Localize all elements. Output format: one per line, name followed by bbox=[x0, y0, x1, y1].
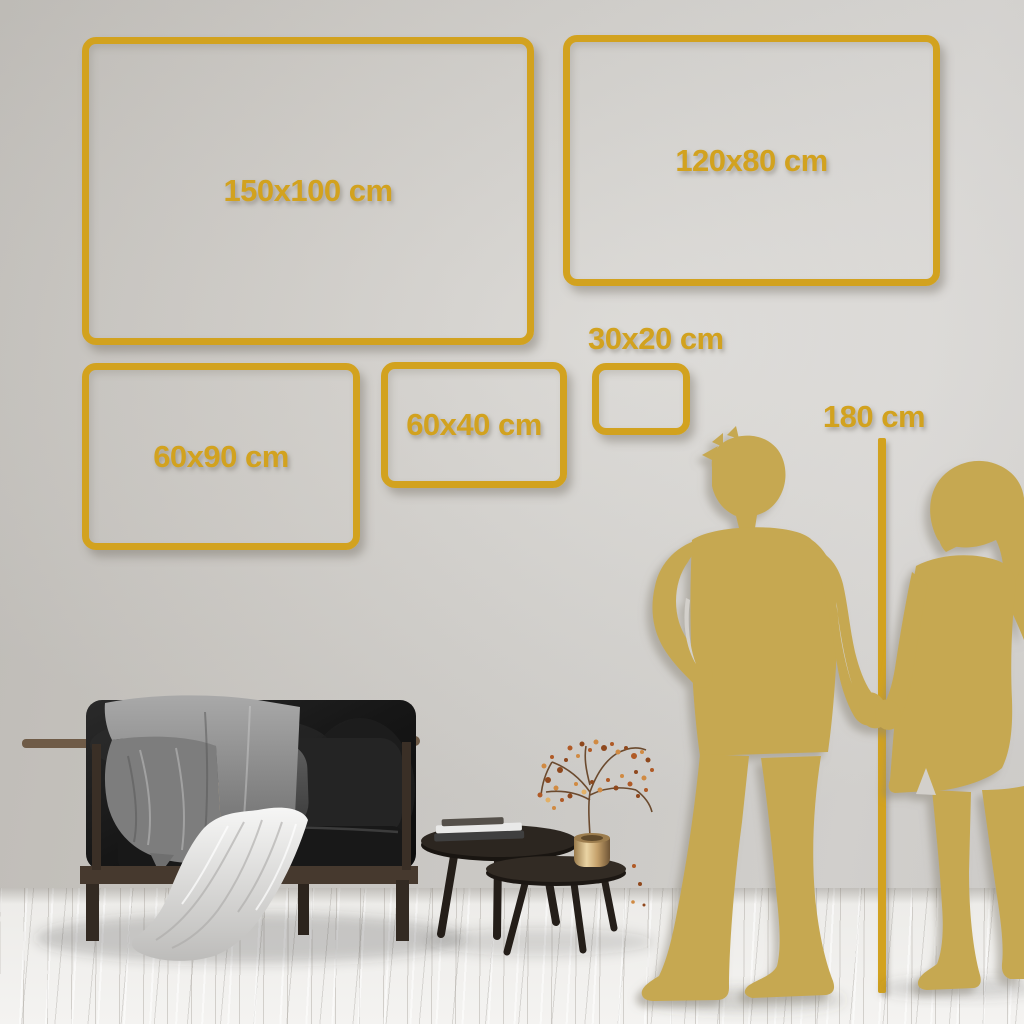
man-silhouette bbox=[642, 426, 887, 1001]
sofa-arm-post bbox=[92, 744, 101, 870]
woman-right-leg bbox=[982, 786, 1024, 979]
size-guide-scene: 150x100 cm 120x80 cm 60x90 cm 60x40 cm 3… bbox=[0, 0, 1024, 1024]
couple-silhouette bbox=[642, 426, 1024, 1001]
man-left-leg bbox=[642, 754, 749, 1001]
woman-left-leg bbox=[918, 790, 981, 990]
room-illustration bbox=[0, 0, 1024, 1024]
sofa-arm-post bbox=[402, 742, 411, 870]
stacked-books bbox=[434, 816, 525, 841]
coffee-tables-illustration bbox=[421, 740, 654, 953]
man-right-leg bbox=[745, 756, 834, 998]
sofa-leg bbox=[396, 880, 409, 941]
sofa-leg bbox=[298, 884, 309, 935]
sofa-leg bbox=[86, 884, 99, 941]
man-head bbox=[712, 436, 786, 528]
woman-silhouette bbox=[875, 461, 1024, 990]
